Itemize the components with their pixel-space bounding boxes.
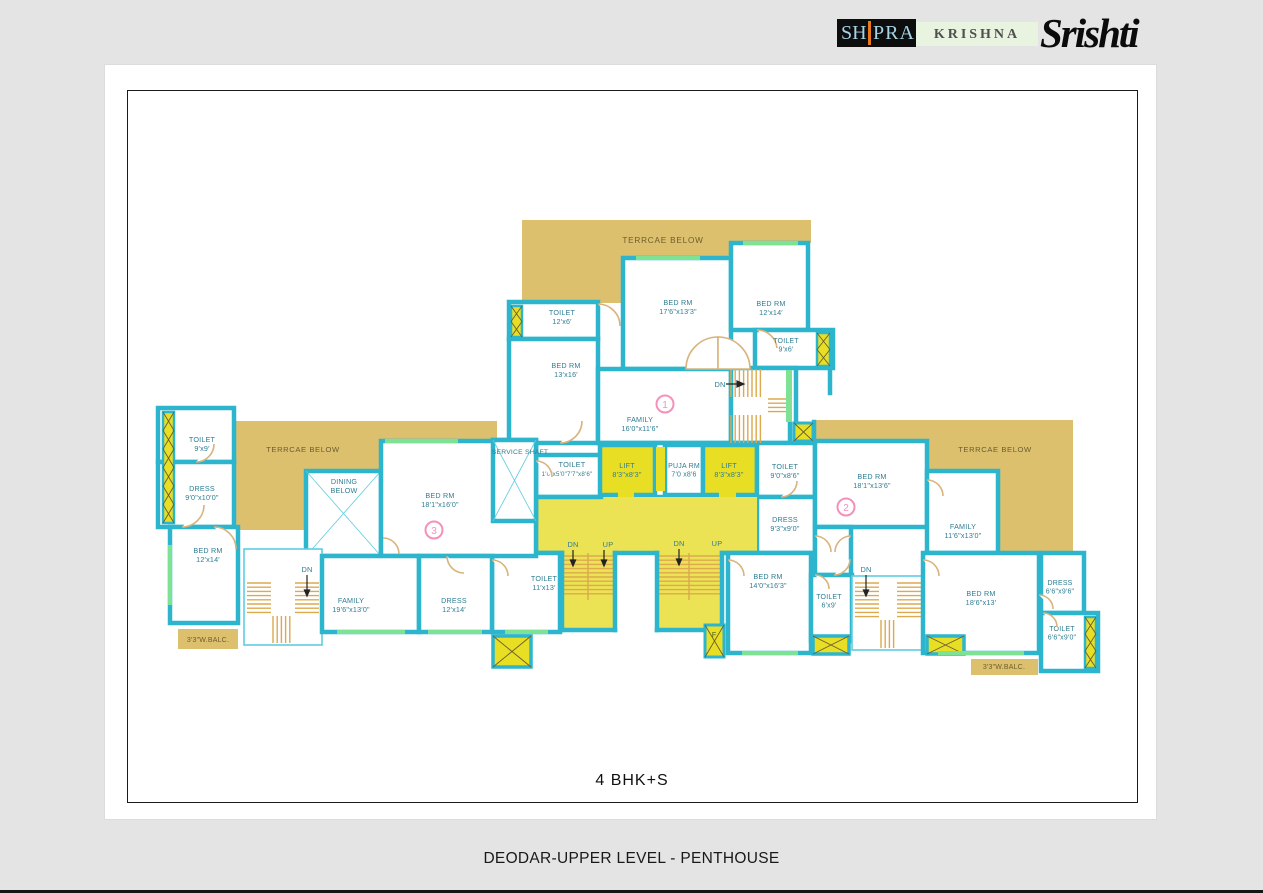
svg-text:TERRCAE BELOW: TERRCAE BELOW <box>622 236 703 245</box>
svg-text:TOILET12′x6′: TOILET12′x6′ <box>549 308 576 326</box>
svg-text:1: 1 <box>662 400 668 411</box>
svg-text:3′3"W.BALC.: 3′3"W.BALC. <box>187 637 229 644</box>
svg-text:DN: DN <box>673 539 684 548</box>
svg-text:BED RM12′x14′: BED RM12′x14′ <box>756 299 785 317</box>
svg-text:DN: DN <box>714 380 725 389</box>
svg-text:TOILET9′0"x8′6": TOILET9′0"x8′6" <box>770 462 799 480</box>
svg-text:BED RM13′x16′: BED RM13′x16′ <box>551 361 580 379</box>
svg-text:SERVICE SHAFT: SERVICE SHAFT <box>492 449 548 456</box>
svg-text:DRESS9′3"x9′0": DRESS9′3"x9′0" <box>770 515 799 533</box>
svg-text:BED RM18′1"x16′0": BED RM18′1"x16′0" <box>421 491 459 509</box>
svg-text:BED RM18′1"x13′6": BED RM18′1"x13′6" <box>853 472 891 490</box>
svg-text:BED RM17′6"x13′3": BED RM17′6"x13′3" <box>659 298 697 316</box>
svg-text:DRESS12′x14′: DRESS12′x14′ <box>441 596 467 614</box>
svg-text:TERRCAE BELOW: TERRCAE BELOW <box>958 445 1032 454</box>
svg-text:3: 3 <box>431 526 437 537</box>
svg-text:DRESS6′6"x9′6": DRESS6′6"x9′6" <box>1046 580 1075 596</box>
svg-text:BED RM18′6"x13′: BED RM18′6"x13′ <box>966 589 997 607</box>
svg-text:TOILET6′6"x9′0": TOILET6′6"x9′0" <box>1048 626 1077 642</box>
svg-text:BED RM12′x14′: BED RM12′x14′ <box>193 546 222 564</box>
svg-text:TOILET11′x13′: TOILET11′x13′ <box>531 574 558 592</box>
svg-text:DN: DN <box>567 540 578 549</box>
svg-text:PUJA RM7′0 x8′6: PUJA RM7′0 x8′6 <box>668 463 700 479</box>
svg-text:2: 2 <box>843 503 849 514</box>
svg-text:DN: DN <box>860 565 871 574</box>
svg-text:F: F <box>712 632 716 639</box>
svg-text:TERRCAE BELOW: TERRCAE BELOW <box>266 445 340 454</box>
svg-text:UP: UP <box>603 540 614 549</box>
svg-text:3′3"W.BALC.: 3′3"W.BALC. <box>983 664 1025 671</box>
svg-text:DININGBELOW: DININGBELOW <box>331 477 358 495</box>
svg-text:DRESS9′0"x10′0": DRESS9′0"x10′0" <box>185 484 219 502</box>
svg-text:DN: DN <box>301 565 312 574</box>
svg-text:BED RM14′0"x16′3": BED RM14′0"x16′3" <box>749 572 787 590</box>
svg-text:UP: UP <box>712 539 723 548</box>
svg-text:TOILET: TOILET <box>559 460 586 469</box>
